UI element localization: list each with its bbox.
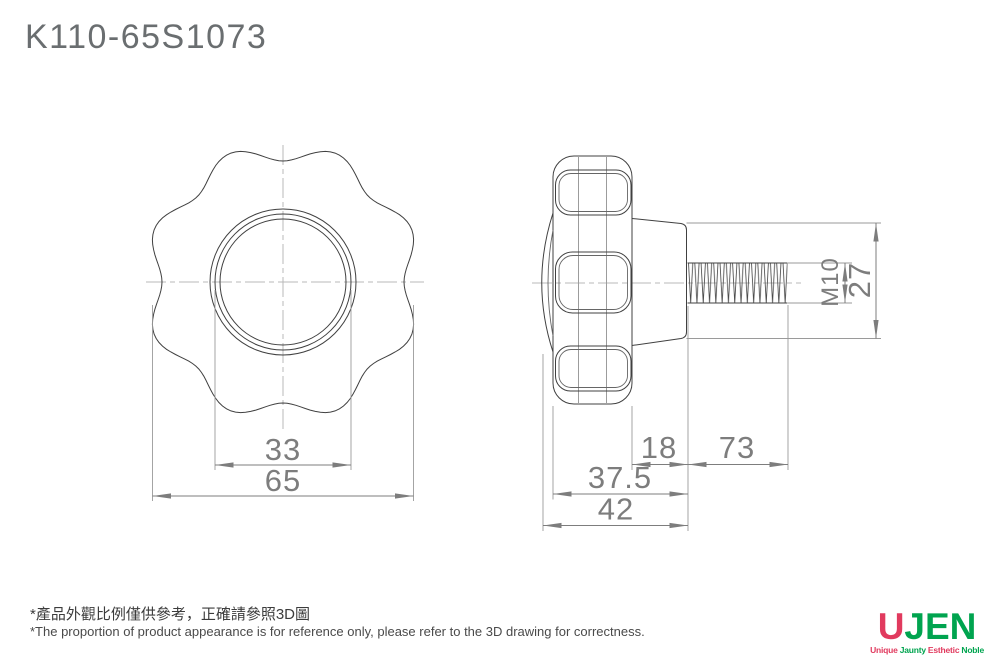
dim-text-37-5: 37.5 [588, 460, 652, 495]
thread-hatch [688, 263, 788, 303]
front-view: 33 65 [146, 145, 424, 501]
dim-text-42: 42 [598, 492, 634, 527]
side-view: 18 73 37.5 42 M10 27 [532, 156, 881, 531]
knob-side-profile [553, 156, 632, 404]
drawing-sheet: K110-65S1073 33 [0, 0, 1001, 667]
dim-text-27: 27 [842, 262, 877, 298]
finger-recess-top-inner [559, 174, 628, 212]
footnote-chinese: *產品外觀比例僅供參考，正確請參照3D圖 [30, 606, 645, 624]
dim-text-73: 73 [719, 430, 755, 465]
tagline-word-noble: Noble [961, 645, 984, 655]
finger-recess-top [556, 170, 632, 215]
tagline-word-unique: Unique [870, 645, 898, 655]
logo-letters-jen: JEN [904, 606, 976, 647]
ujen-logo-wordmark: UJEN [869, 609, 985, 645]
tagline-word-jaunty: Jaunty [900, 645, 926, 655]
footnote-english: *The proportion of product appearance is… [30, 624, 645, 640]
technical-drawing: 33 65 [0, 0, 1001, 667]
finger-recess-bottom-inner [559, 350, 628, 388]
ujen-logo-tagline: UniqueJauntyEstheticNoble [869, 645, 985, 655]
dim-text-m10: M10 [817, 257, 844, 307]
finger-recess-bottom [556, 346, 632, 391]
dim-text-33: 33 [265, 432, 301, 467]
dim-text-65: 65 [265, 463, 301, 498]
footnotes: *產品外觀比例僅供參考，正確請參照3D圖 *The proportion of … [30, 606, 645, 640]
logo-letter-u: U [878, 606, 905, 647]
ujen-logo: UJEN UniqueJauntyEstheticNoble [869, 609, 985, 655]
hub-boss [632, 219, 687, 346]
tagline-word-esthetic: Esthetic [928, 645, 959, 655]
